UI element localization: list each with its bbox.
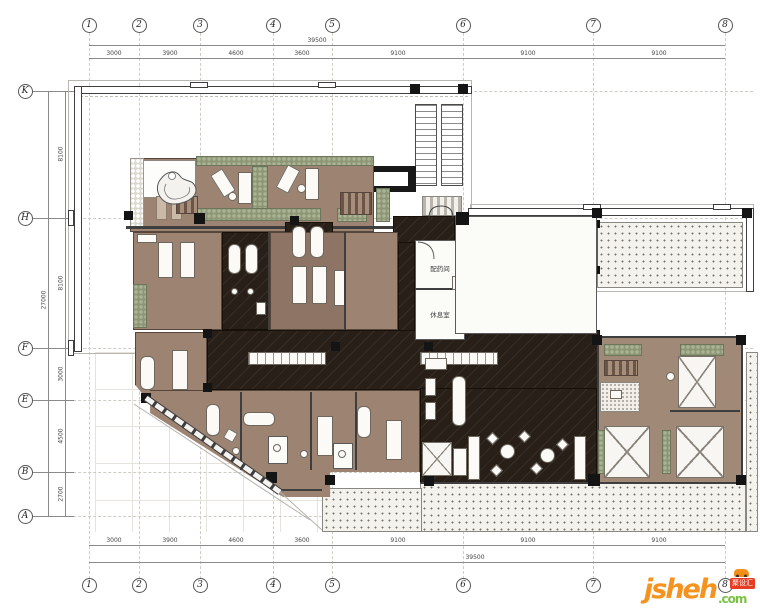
rug [156,196,167,220]
watermark-badge: 聚设汇 [730,578,755,589]
column [424,476,434,486]
wall-partition [240,392,242,470]
wall-tab-left-2 [68,340,74,356]
dim-left-overall: 27000 [41,290,48,309]
wall-tab-h-2 [713,204,731,210]
slat-bench [176,196,198,214]
foliage-band-bottom [196,208,321,221]
terrace-bottom-left [322,488,422,532]
treatment-room-3 [345,232,398,330]
wall-h-right [468,208,748,216]
dim-top-seg-3: 4600 [228,50,243,57]
dim-left-seg-3: 3000 [58,366,65,381]
wall-h-interior [126,226,416,229]
column [194,213,205,224]
grid-bubble-top-5: 5 [325,18,340,33]
grid-bubble-bottom-2: 2 [132,578,147,593]
console-table [248,352,326,365]
shelving [604,360,638,376]
wall-tab-left-1 [68,210,74,226]
bathtub [245,244,258,274]
column [124,211,133,220]
low-table [610,390,622,399]
dim-line-top-segments [89,58,725,59]
dim-top-seg-5: 9100 [390,50,405,57]
side-table [297,184,306,193]
bathtub [206,404,220,436]
stair-rail [436,104,442,186]
massage-bed [317,416,333,456]
grid-bubble-left-E: E [18,393,33,408]
massage-bed [172,350,188,390]
foliage-strip-3 [133,284,147,328]
terrace-right-strip [746,352,758,532]
dim-top-overall: 39500 [307,37,326,44]
elevator [422,442,452,476]
terrace-top-right [597,222,743,288]
vanity [137,234,157,243]
stool [300,450,308,458]
dim-line-bottom-overall [89,562,725,563]
column [424,342,433,351]
watermark-tld: .com [718,592,746,606]
bathtub [243,412,275,426]
shower-head [231,288,238,295]
wall-partition [355,392,357,470]
stem-B [33,472,74,473]
column [203,383,212,392]
grid-bubble-bottom-1: 1 [82,578,97,593]
stem-E [33,400,74,401]
watermark-brand: jsheh [644,574,716,605]
bench [468,436,480,480]
dim-left-seg-1: 8100 [58,146,65,161]
canopy-dashed-line [80,96,468,97]
side-table [228,192,237,201]
bar-counter [452,376,466,426]
grid-bubble-left-F: F [18,341,33,356]
dim-left-seg-5: 2700 [58,486,65,501]
cafe-table [500,444,515,459]
grid-bubble-left-K: K [18,84,33,99]
dim-bottom-seg-6: 9100 [520,537,535,544]
dim-line-left-overall [48,91,49,516]
foliage-strip-2 [376,188,390,222]
dim-bottom-seg-3: 4600 [228,537,243,544]
foliage-strip-7 [662,430,671,474]
toilet [256,302,266,315]
dim-left-seg-2: 8100 [58,275,65,290]
dim-bottom-seg-5: 9100 [390,537,405,544]
dim-bottom-seg-7: 9100 [651,537,666,544]
foliage-band-top [196,156,374,166]
toilet [338,450,346,458]
grid-bubble-bottom-5: 5 [325,578,340,593]
wall-partition [415,288,453,290]
dim-top-seg-1: 3000 [106,50,121,57]
wall-right-end [746,208,754,292]
column [742,208,752,218]
dim-bottom-seg-2: 3900 [162,537,177,544]
chaise-lounge [238,172,252,204]
dim-bottom-seg-1: 3000 [106,537,121,544]
toilet [273,444,281,452]
canopy-daybed [604,426,650,478]
dim-bottom-seg-4: 3600 [294,537,309,544]
dim-top-seg-4: 3600 [294,50,309,57]
corridor-marble-vertical [398,242,415,334]
wall-bottom [272,489,322,491]
bathtub [228,244,241,274]
wall-partition [268,232,270,330]
foliage-strip-6 [598,430,605,474]
wall-bottom [420,482,598,484]
grid-bubble-left-B: B [18,465,33,480]
bench [574,436,586,480]
grid-bubble-left-A: A [18,509,33,524]
room-label-rest: 休息室 [430,309,450,319]
grid-bubble-top-4: 4 [266,18,281,33]
grid-bubble-bottom-4: 4 [266,578,281,593]
dim-line-top-overall [89,45,725,46]
shower-head [247,288,254,295]
terrace-bottom [420,483,746,532]
column [592,335,602,345]
wall-partition [670,410,740,412]
column [588,474,600,486]
wall-tab-top-2 [318,82,336,88]
grid-bubble-bottom-6: 6 [456,578,471,593]
wall-partition [344,232,346,330]
multi-purpose-room [455,216,597,334]
column [456,212,469,225]
massage-bed [158,242,173,278]
wall-tab-top-1 [190,82,208,88]
grid-bubble-left-H: H [18,211,33,226]
cabinet [425,402,436,420]
column [592,208,602,218]
dim-bottom-overall: 39500 [465,554,484,561]
dim-top-seg-6: 9100 [520,50,535,57]
dim-top-seg-7: 9100 [651,50,666,57]
chaise-lounge [305,168,319,200]
column [325,475,335,485]
foliage-strip-5 [680,344,724,356]
dim-line-left-segments [65,91,66,516]
column [331,342,340,351]
foliage-strip-4 [604,344,642,356]
grid-bubble-top-6: 6 [456,18,471,33]
grid-bubble-bottom-3: 3 [193,578,208,593]
stem-A [33,516,74,517]
canopy-daybed [676,426,724,478]
column [266,472,277,483]
stool [666,372,675,381]
spa-pool-room-floor [142,160,196,198]
grid-bubble-top-1: 1 [82,18,97,33]
grid-bubble-top-2: 2 [132,18,147,33]
grid-bubble-top-8: 8 [718,18,733,33]
grid-bubble-top-7: 7 [586,18,601,33]
bathtub [140,356,155,390]
bathtub [292,226,306,258]
column [290,216,299,225]
massage-bed [180,242,195,278]
floor-plan-canvas: 39500 3000 3900 4600 3600 9100 9100 9100… [0,0,760,612]
column [736,335,746,345]
column [736,475,746,485]
massage-bed [312,266,327,304]
shaft-core-inner [374,172,408,186]
slat-bench [340,192,372,215]
stool [232,447,240,455]
column [458,84,468,94]
bathtub [310,226,324,258]
bathtub [357,406,371,438]
cafe-table [540,448,555,463]
wall-partition [310,392,312,470]
dim-line-bottom-segments [89,545,725,546]
room-label-dispensary: 配药间 [430,263,450,273]
cabinet [425,378,436,396]
wall-left [74,86,82,352]
cabinet [425,358,447,370]
column [410,84,420,94]
dim-left-seg-4: 4500 [58,428,65,443]
column [203,329,212,338]
car-icon [734,569,749,577]
dim-top-seg-2: 3900 [162,50,177,57]
canopy-daybed [678,356,716,408]
grid-bubble-top-3: 3 [193,18,208,33]
column [141,393,151,403]
massage-bed [292,266,307,304]
watermark: jsheh .com 聚设汇 [642,570,758,610]
grid-bubble-bottom-7: 7 [586,578,601,593]
massage-bed [386,420,402,460]
service-shaft [453,448,467,476]
